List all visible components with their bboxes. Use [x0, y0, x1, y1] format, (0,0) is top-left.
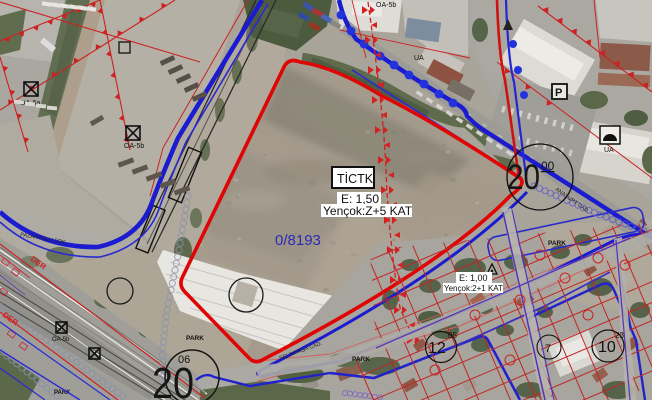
svg-text:OA-5b: OA-5b [376, 2, 396, 9]
svg-text:0/8193: 0/8193 [275, 232, 321, 249]
svg-text:PARK: PARK [548, 240, 566, 247]
svg-text:P: P [555, 87, 562, 99]
svg-text:7: 7 [545, 343, 551, 355]
svg-text:E: 1,00: E: 1,00 [459, 273, 488, 283]
svg-text:Yençok:Z+5 KAT: Yençok:Z+5 KAT [323, 204, 413, 218]
svg-text:PARK: PARK [352, 356, 370, 363]
svg-text:05: 05 [448, 331, 457, 340]
svg-text:23: 23 [615, 331, 624, 340]
svg-text:PARK: PARK [186, 335, 204, 342]
svg-text:20: 20 [507, 158, 540, 197]
svg-text:00: 00 [541, 159, 555, 173]
svg-text:TİCTK: TİCTK [337, 172, 374, 186]
svg-text:12: 12 [428, 340, 446, 357]
svg-text:OA-5b: OA-5b [52, 337, 70, 343]
svg-text:UA: UA [604, 147, 614, 154]
svg-text:OA-5b: OA-5b [124, 143, 144, 150]
svg-text:UA: UA [414, 55, 424, 62]
svg-text:10: 10 [598, 339, 616, 356]
svg-text:Yençok:2+1 KAT: Yençok:2+1 KAT [444, 284, 503, 293]
svg-text:06: 06 [178, 354, 190, 366]
